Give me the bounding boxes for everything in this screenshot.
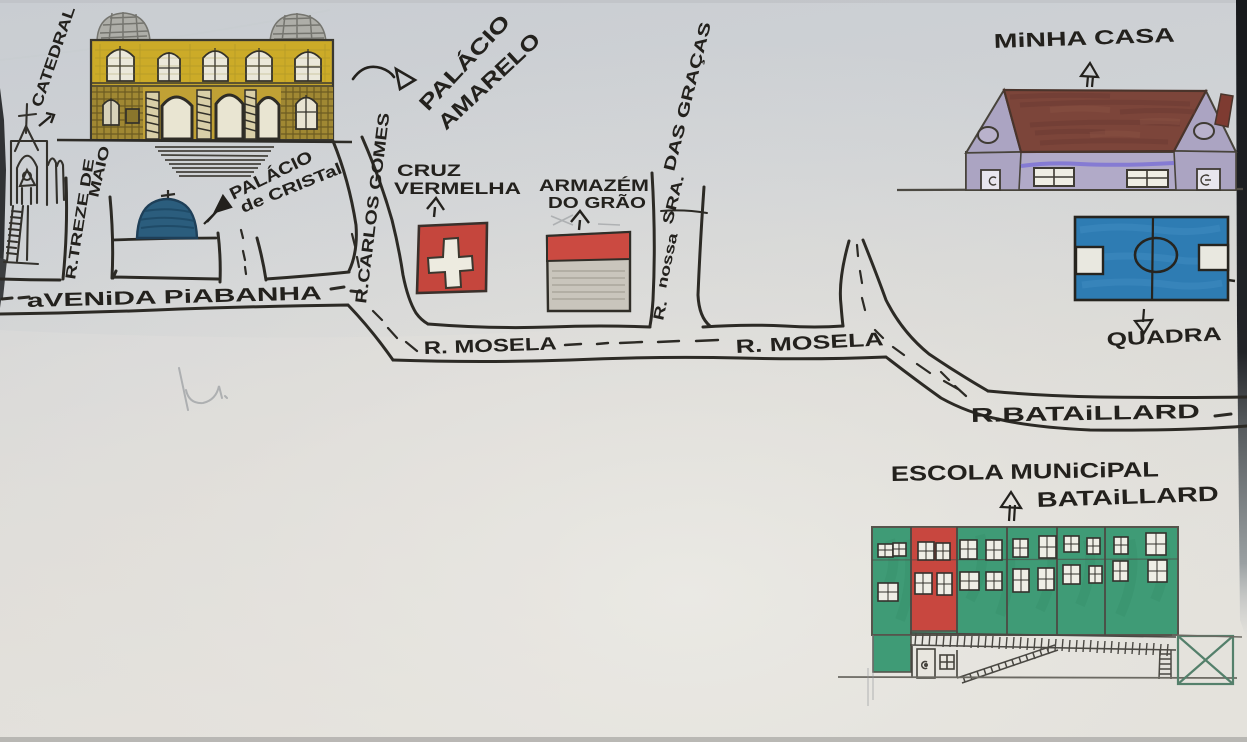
svg-text:ESCOLA MUNiCiPAL: ESCOLA MUNiCiPAL [891,458,1160,486]
svg-text:R.BATAiLLARD: R.BATAiLLARD [971,401,1200,427]
svg-text:ARMAZÉM: ARMAZÉM [539,176,649,195]
svg-text:DO GRÃO: DO GRÃO [548,192,646,212]
svg-text:VERMELHA: VERMELHA [394,179,521,198]
svg-text:CRUZ: CRUZ [397,161,461,180]
